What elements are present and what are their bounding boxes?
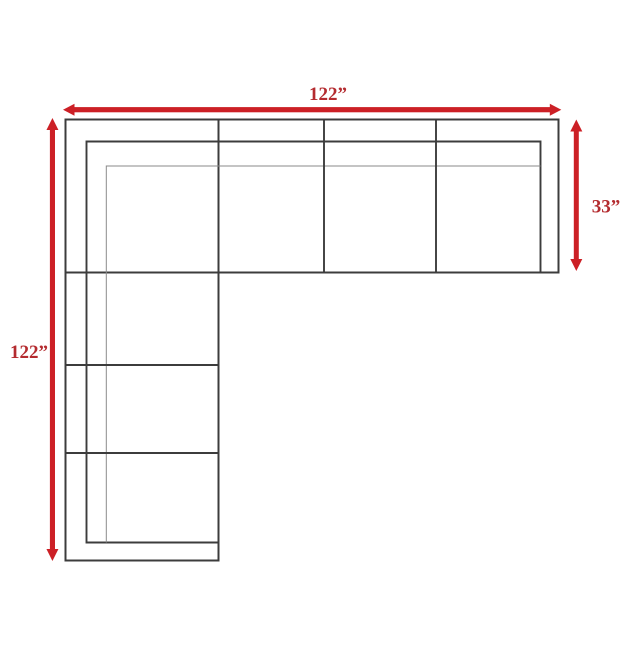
svg-text:33”: 33” bbox=[592, 197, 621, 218]
svg-text:122”: 122” bbox=[309, 84, 347, 105]
svg-text:122”: 122” bbox=[10, 342, 48, 363]
